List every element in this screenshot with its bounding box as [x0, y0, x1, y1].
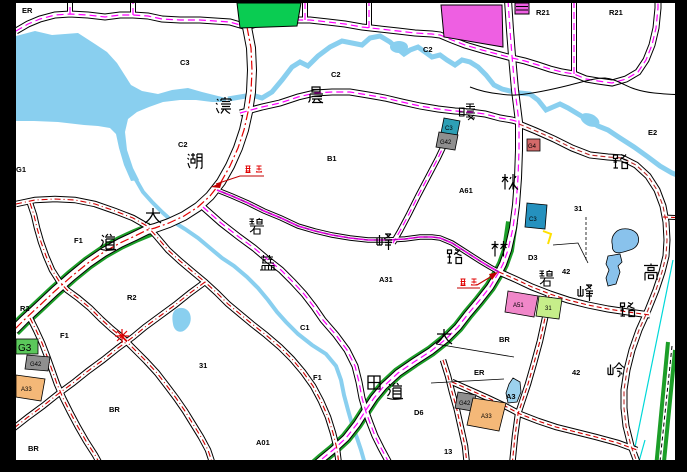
svg-text:BR: BR: [109, 405, 120, 414]
svg-text:A3: A3: [506, 392, 516, 401]
svg-text:31: 31: [574, 204, 582, 213]
svg-text:42: 42: [572, 368, 580, 377]
svg-text:B1: B1: [327, 154, 337, 163]
svg-text:D3: D3: [528, 253, 538, 262]
svg-text:A33: A33: [21, 387, 32, 393]
svg-text:C3: C3: [445, 126, 453, 132]
svg-text:A33: A33: [481, 414, 492, 420]
svg-text:C3: C3: [180, 58, 190, 67]
svg-text:R21: R21: [609, 8, 623, 17]
svg-text:C2: C2: [423, 45, 433, 54]
svg-text:G3: G3: [18, 343, 32, 354]
svg-text:F1: F1: [313, 373, 322, 382]
svg-text:C3: C3: [529, 217, 537, 223]
svg-text:ER: ER: [22, 6, 33, 15]
svg-text:A61: A61: [459, 186, 473, 195]
svg-text:31: 31: [545, 306, 552, 312]
svg-text:G1: G1: [16, 165, 26, 174]
svg-text:G42: G42: [30, 362, 42, 368]
svg-text:31: 31: [199, 361, 207, 370]
svg-text:R2: R2: [127, 293, 137, 302]
svg-text:BR: BR: [499, 335, 510, 344]
svg-text:D6: D6: [414, 408, 424, 417]
svg-text:13: 13: [444, 447, 452, 456]
svg-text:BR: BR: [28, 444, 39, 453]
svg-text:A31: A31: [379, 275, 393, 284]
svg-text:G42: G42: [459, 401, 471, 407]
svg-text:ER: ER: [474, 368, 485, 377]
svg-text:F1: F1: [74, 236, 83, 245]
svg-text:C2: C2: [178, 140, 188, 149]
svg-text:G4: G4: [528, 144, 537, 150]
svg-text:R2: R2: [20, 304, 30, 313]
svg-text:F1: F1: [60, 331, 69, 340]
svg-text:C2: C2: [331, 70, 341, 79]
svg-text:R21: R21: [536, 8, 550, 17]
svg-text:A01: A01: [256, 438, 270, 447]
svg-text:E2: E2: [648, 128, 657, 137]
svg-text:A51: A51: [513, 303, 524, 309]
svg-text:42: 42: [562, 267, 570, 276]
svg-text:G42: G42: [440, 140, 452, 146]
svg-text:C1: C1: [300, 323, 310, 332]
